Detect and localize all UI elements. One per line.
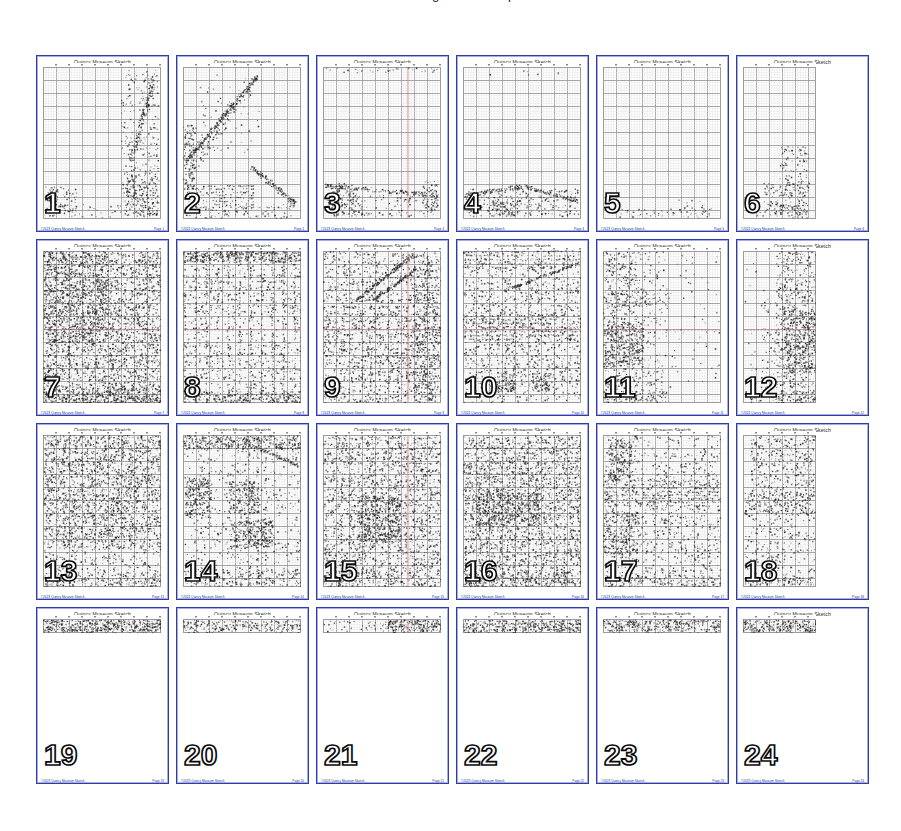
clipped-header-text: gp	[0, 0, 901, 6]
page-thumbnail-16[interactable]: Quincy Museum Sketch16©2023 Quincy Museu…	[456, 423, 589, 600]
page-footer-copyright: ©2023 Quincy Museum Sketch	[601, 778, 644, 781]
page-number: 7	[44, 372, 61, 402]
page-thumbnail-grid: Quincy Museum Sketch1©2023 Quincy Museum…	[36, 55, 869, 784]
page-thumbnail-2[interactable]: Quincy Museum Sketch2©2023 Quincy Museum…	[176, 55, 309, 232]
page-number: 21	[324, 740, 357, 770]
page-footer-copyright: ©2023 Quincy Museum Sketch	[741, 778, 784, 781]
page-footer-pagenum: Page 19	[152, 778, 164, 781]
page-footer-pagenum: Page 11	[712, 410, 724, 413]
page-number: 23	[604, 740, 637, 770]
page-thumbnail-13[interactable]: Quincy Museum Sketch13©2023 Quincy Museu…	[36, 423, 169, 600]
page-footer-copyright: ©2023 Quincy Museum Sketch	[321, 410, 364, 413]
page-footer-pagenum: Page 16	[572, 594, 584, 597]
page-number: 19	[44, 740, 77, 770]
page-footer-copyright: ©2023 Quincy Museum Sketch	[461, 226, 504, 229]
page-thumbnail-14[interactable]: Quincy Museum Sketch14©2023 Quincy Museu…	[176, 423, 309, 600]
page-number: 6	[744, 188, 761, 218]
page-footer-pagenum: Page 4	[574, 226, 584, 229]
page-thumbnail-1[interactable]: Quincy Museum Sketch1©2023 Quincy Museum…	[36, 55, 169, 232]
pattern-grid-canvas	[463, 615, 581, 633]
page-number: 15	[324, 556, 357, 586]
page-footer-pagenum: Page 6	[854, 226, 864, 229]
page-footer-pagenum: Page 8	[294, 410, 304, 413]
page-footer-pagenum: Page 1	[154, 226, 164, 229]
page-footer-copyright: ©2023 Quincy Museum Sketch	[181, 410, 224, 413]
page-footer-copyright: ©2023 Quincy Museum Sketch	[181, 594, 224, 597]
page-thumbnail-12[interactable]: Quincy Museum Sketch12©2023 Quincy Museu…	[736, 239, 869, 416]
page-number: 3	[324, 188, 341, 218]
page-footer-pagenum: Page 9	[434, 410, 444, 413]
page-number: 14	[184, 556, 217, 586]
page-thumbnail-19[interactable]: Quincy Museum Sketch19©2023 Quincy Museu…	[36, 607, 169, 784]
page-footer-copyright: ©2023 Quincy Museum Sketch	[741, 226, 784, 229]
pattern-grid-canvas	[43, 615, 161, 633]
page-footer-copyright: ©2023 Quincy Museum Sketch	[181, 226, 224, 229]
page-footer-pagenum: Page 23	[712, 778, 724, 781]
page-footer-copyright: ©2023 Quincy Museum Sketch	[41, 778, 84, 781]
page-thumbnail-4[interactable]: Quincy Museum Sketch4©2023 Quincy Museum…	[456, 55, 589, 232]
page-footer-pagenum: Page 10	[572, 410, 584, 413]
page-footer-pagenum: Page 18	[852, 594, 864, 597]
page-footer-pagenum: Page 12	[852, 410, 864, 413]
page-number: 12	[744, 372, 777, 402]
page-footer-pagenum: Page 17	[712, 594, 724, 597]
page-number: 5	[604, 188, 621, 218]
page-footer-copyright: ©2023 Quincy Museum Sketch	[601, 226, 644, 229]
page-number: 8	[184, 372, 201, 402]
page-number: 16	[464, 556, 497, 586]
page-footer-copyright: ©2023 Quincy Museum Sketch	[741, 410, 784, 413]
clipped-header-fragment: p	[508, 0, 515, 2]
pattern-grid-canvas	[323, 615, 441, 633]
page-number: 18	[744, 556, 777, 586]
page-footer-pagenum: Page 5	[714, 226, 724, 229]
page-number: 1	[44, 188, 61, 218]
page-footer-copyright: ©2023 Quincy Museum Sketch	[461, 410, 504, 413]
page-thumbnail-11[interactable]: Quincy Museum Sketch11©2023 Quincy Museu…	[596, 239, 729, 416]
page-footer-pagenum: Page 20	[292, 778, 304, 781]
pattern-grid-canvas	[743, 615, 816, 633]
page-thumbnail-10[interactable]: Quincy Museum Sketch10©2023 Quincy Museu…	[456, 239, 589, 416]
page-footer-pagenum: Page 2	[294, 226, 304, 229]
page-number: 24	[744, 740, 777, 770]
page-footer-copyright: ©2023 Quincy Museum Sketch	[321, 594, 364, 597]
page-footer-copyright: ©2023 Quincy Museum Sketch	[601, 594, 644, 597]
page-footer-copyright: ©2023 Quincy Museum Sketch	[41, 410, 84, 413]
page-thumbnail-22[interactable]: Quincy Museum Sketch22©2023 Quincy Museu…	[456, 607, 589, 784]
page-number: 4	[464, 188, 481, 218]
page-thumbnail-3[interactable]: Quincy Museum Sketch3©2023 Quincy Museum…	[316, 55, 449, 232]
page-footer-pagenum: Page 24	[852, 778, 864, 781]
page-thumbnail-18[interactable]: Quincy Museum Sketch18©2023 Quincy Museu…	[736, 423, 869, 600]
page-number: 13	[44, 556, 77, 586]
page-footer-copyright: ©2023 Quincy Museum Sketch	[461, 778, 504, 781]
page-footer-copyright: ©2023 Quincy Museum Sketch	[181, 778, 224, 781]
page-thumbnail-9[interactable]: Quincy Museum Sketch9©2023 Quincy Museum…	[316, 239, 449, 416]
page-number: 11	[604, 372, 636, 402]
page-thumbnail-8[interactable]: Quincy Museum Sketch8©2023 Quincy Museum…	[176, 239, 309, 416]
page-footer-copyright: ©2023 Quincy Museum Sketch	[601, 410, 644, 413]
page-thumbnail-7[interactable]: Quincy Museum Sketch7©2023 Quincy Museum…	[36, 239, 169, 416]
page-footer-pagenum: Page 3	[434, 226, 444, 229]
page-number: 10	[464, 372, 497, 402]
page-footer-pagenum: Page 22	[572, 778, 584, 781]
page-thumbnail-20[interactable]: Quincy Museum Sketch20©2023 Quincy Museu…	[176, 607, 309, 784]
page-number: 22	[464, 740, 497, 770]
page-footer-copyright: ©2023 Quincy Museum Sketch	[41, 226, 84, 229]
page-footer-pagenum: Page 7	[154, 410, 164, 413]
page-footer-pagenum: Page 15	[432, 594, 444, 597]
page-thumbnail-23[interactable]: Quincy Museum Sketch23©2023 Quincy Museu…	[596, 607, 729, 784]
page-thumbnail-15[interactable]: Quincy Museum Sketch15©2023 Quincy Museu…	[316, 423, 449, 600]
page-thumbnail-5[interactable]: Quincy Museum Sketch5©2023 Quincy Museum…	[596, 55, 729, 232]
page-thumbnail-21[interactable]: Quincy Museum Sketch21©2023 Quincy Museu…	[316, 607, 449, 784]
page-thumbnail-17[interactable]: Quincy Museum Sketch17©2023 Quincy Museu…	[596, 423, 729, 600]
page-number: 2	[184, 188, 201, 218]
pattern-grid-canvas	[603, 615, 721, 633]
page-footer-copyright: ©2023 Quincy Museum Sketch	[41, 594, 84, 597]
page-number: 9	[324, 372, 341, 402]
page-footer-copyright: ©2023 Quincy Museum Sketch	[321, 778, 364, 781]
page-number: 20	[184, 740, 217, 770]
page-footer-pagenum: Page 13	[152, 594, 164, 597]
page-thumbnail-6[interactable]: Quincy Museum Sketch6©2023 Quincy Museum…	[736, 55, 869, 232]
page-footer-copyright: ©2023 Quincy Museum Sketch	[321, 226, 364, 229]
clipped-header-fragment: g	[432, 0, 439, 2]
page-footer-copyright: ©2023 Quincy Museum Sketch	[741, 594, 784, 597]
page-number: 17	[604, 556, 637, 586]
page-footer-copyright: ©2023 Quincy Museum Sketch	[461, 594, 504, 597]
page-footer-pagenum: Page 21	[432, 778, 444, 781]
pattern-grid-canvas	[183, 615, 301, 633]
page-footer-pagenum: Page 14	[292, 594, 304, 597]
page-thumbnail-24[interactable]: Quincy Museum Sketch24©2023 Quincy Museu…	[736, 607, 869, 784]
